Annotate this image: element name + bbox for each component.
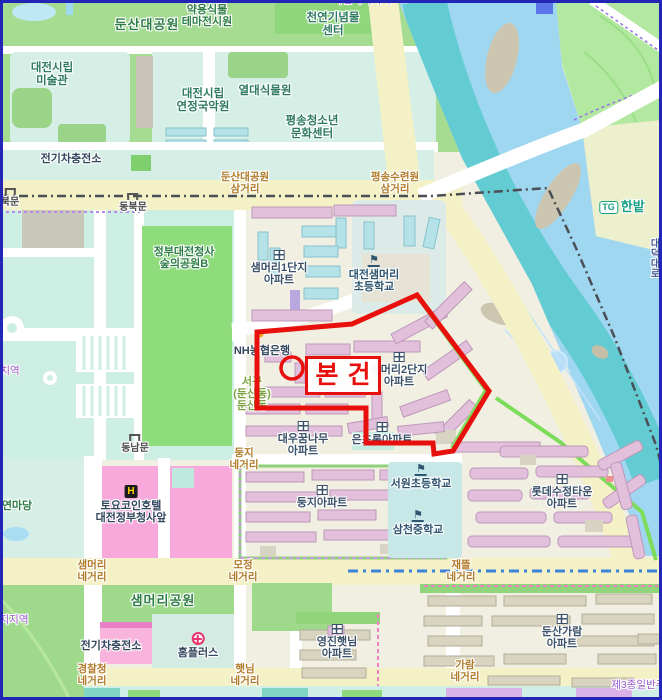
- label-daedeok-daero-road: 대덕대로: [648, 238, 659, 278]
- label-garam-junction: 가람네거리: [451, 660, 480, 683]
- label-toyoko-inn: H토요코인호텔대전정부청사앞: [96, 485, 167, 524]
- homeplus-icon: [191, 632, 204, 645]
- label-saemmeori-1danji: 샘머리1단지아파트: [251, 250, 308, 286]
- label-pyeongsong-center: 평송청소년문화센터: [286, 115, 339, 140]
- apt-icon: [274, 250, 285, 260]
- label-seogu-dunsandong: 서구(둔산동)둔산동: [233, 376, 271, 412]
- label-jaetteul-junction: 재뜰네거리: [447, 560, 476, 583]
- label-dungji-junction: 둥지네거리: [230, 448, 259, 471]
- label-eunchorong: 은초롱아파트: [352, 422, 413, 446]
- label-daejeon-museum: 대전시립미술관: [31, 62, 73, 87]
- label-jayeon-nokji-zone: 자연녹지지역: [333, 0, 391, 7]
- label-mojeong-junction: 모정네거리: [229, 560, 258, 583]
- label-yeonmadang: 연마당: [2, 500, 32, 512]
- school-icon: ⚑: [415, 464, 427, 476]
- map-viewport[interactable]: .bp{fill:#e2c0dc;stroke:#bd97ba;stroke-w…: [0, 0, 662, 700]
- tollgate-badge: TG: [599, 201, 618, 214]
- label-nh-bank: NH농협은행: [234, 345, 290, 357]
- label-dunsan-garam: 둔산가람아파트: [542, 614, 582, 650]
- label-saemmeori-elementary: ⚑대전샘머리초등학교: [349, 255, 400, 293]
- label-dongbukmun-gate: 동북문: [119, 193, 147, 213]
- subject-property-label: 본건: [315, 363, 379, 388]
- label-jong3-residential-zone: 제3종일반주거지: [611, 680, 662, 692]
- label-saemmeori-park: 샘머리공원: [131, 594, 196, 608]
- label-tg-hanbat: TG한밭: [599, 200, 644, 214]
- label-cheonyeon-ginyeommul: 천연기념물센터: [307, 12, 360, 37]
- school-icon: ⚑: [368, 255, 380, 267]
- gate-icon: [129, 434, 140, 441]
- map-labels-layer: 둔산대공원약용식물테마전시원천연기념물센터자연녹지지역대전시립미술관대전시립연정…: [0, 0, 662, 700]
- label-pyeongsong-samgeori: 평송수련원삼거리: [371, 172, 419, 195]
- apt-icon: [394, 352, 405, 362]
- label-gov-forest-park: 정부대전청사숲의공원B: [154, 246, 215, 270]
- label-dunsan-daegongwon: 둔산대공원: [115, 18, 180, 32]
- label-partial-zone-left2: 지지역: [0, 615, 28, 627]
- label-dunsan-samgeori: 둔산대공원삼거리: [221, 172, 269, 195]
- apt-icon: [556, 614, 567, 624]
- label-saemmeori-junction: 샘머리네거리: [78, 560, 107, 583]
- label-dongnammun-gate: 동남문: [121, 434, 149, 454]
- label-gyeongchalcheong-junction: 경찰청네거리: [78, 664, 107, 687]
- apt-icon: [316, 485, 327, 495]
- label-yakyong-sikmul: 약용식물테마전시원: [182, 4, 233, 28]
- label-haennim-junction: 햇님네거리: [231, 664, 260, 687]
- label-daewoo-kkumnamu: 대우꿈나무아파트: [278, 421, 329, 457]
- apt-icon: [556, 474, 567, 484]
- label-yeoldae-sikmulwon: 열대식물원: [239, 85, 292, 98]
- apt-icon: [331, 624, 342, 634]
- label-homeplus: 홈플러스: [178, 632, 218, 659]
- label-bukmun-gate: 북문: [1, 188, 19, 208]
- hotel-icon: H: [125, 485, 138, 498]
- label-ev-station-top: 전기차충전소: [41, 153, 102, 165]
- label-dungji-apt: 둥지아파트: [297, 485, 348, 509]
- apt-icon: [297, 421, 308, 431]
- label-yeonjeong-gugagwon: 대전시립연정국악원: [177, 88, 230, 113]
- label-yeongjin-haennim: 영진햇님아파트: [317, 624, 357, 660]
- apt-icon: [376, 422, 387, 432]
- subject-property-box: 본건: [305, 356, 381, 395]
- gate-icon: [127, 193, 138, 200]
- label-seowon-elementary: ⚑서원초등학교: [391, 464, 452, 490]
- gate-icon: [5, 188, 16, 195]
- label-lotte-sujeong: 롯데수정타운아파트: [532, 474, 593, 510]
- label-samcheon-middle: ⚑삼천중학교: [393, 510, 444, 536]
- label-partial-zone-left: 치역: [0, 366, 19, 378]
- school-icon: ⚑: [412, 510, 424, 522]
- label-ev-station-bottom: 전기차충전소: [81, 640, 142, 652]
